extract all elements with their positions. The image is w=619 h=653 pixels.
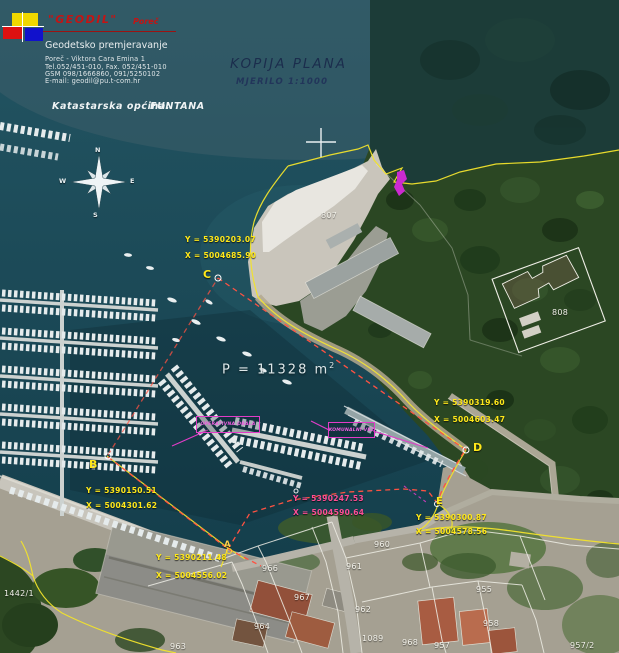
point-d-x: X = 5004603.47 — [434, 415, 505, 424]
aerial-photo-scenery — [0, 0, 619, 653]
parcel-label-1089: 1089 — [362, 634, 384, 643]
point-a-x: X = 5004556.02 — [156, 571, 227, 580]
point-c-letter: C — [203, 268, 211, 281]
point-b-y: Y = 5390150.51 — [86, 486, 157, 495]
page-title: KOPIJA PLANA — [230, 56, 347, 72]
point-c-y: Y = 5390203.07 — [185, 235, 256, 244]
point-d-y: Y = 5390319.60 — [434, 398, 505, 407]
komunalni-vez-text: KOMUNALNI VEZ — [329, 428, 375, 433]
logo-underline — [43, 31, 176, 32]
company-name: "GEODIL" — [48, 13, 118, 26]
parcel-label-967: 967 — [294, 593, 310, 602]
point-b-letter: B — [89, 458, 97, 471]
parcel-label-958: 958 — [483, 619, 499, 628]
parcel-label-963: 963 — [170, 642, 186, 651]
point-mid-y: Y = 5390247.53 — [293, 494, 364, 503]
company-address: Poreč - Viktora Cara Emina 1 — [45, 55, 145, 63]
point-e-letter: E — [436, 496, 443, 507]
komunalni-vez-label: KOMUNALNI VEZ — [328, 422, 375, 438]
logo-square-blue — [25, 28, 43, 41]
parcel-label-1442-1: 1442/1 — [4, 589, 34, 598]
parcel-label-960: 960 — [374, 540, 390, 549]
logo-square-red — [3, 26, 22, 39]
parcel-label-961: 961 — [346, 562, 362, 571]
company-email: E-mail: geodil@pu.t-com.hr — [45, 77, 140, 85]
parcel-label-968: 968 — [402, 638, 418, 647]
point-e-x: X = 5004578.56 — [416, 527, 487, 536]
point-a-y: Y = 5390211.48 — [156, 553, 227, 562]
point-mid-x: X = 5004590.64 — [293, 508, 364, 517]
point-c-x: X = 5004685.90 — [185, 251, 256, 260]
compass-north-label: N — [95, 146, 100, 154]
compass-south-label: S — [93, 211, 98, 219]
parcel-label-964: 964 — [254, 622, 270, 631]
point-e-y: Y = 5390300.87 — [416, 513, 487, 522]
parcel-label-808: 808 — [552, 308, 568, 317]
logo-divider — [22, 12, 23, 42]
cadastral-municipality-value: FUNTANA — [150, 101, 205, 112]
operativna-obala-label: OPERATIVNA OBALA — [196, 416, 260, 433]
parcel-label-957: 957 — [434, 641, 450, 650]
parcel-label-957-2: 957/2 — [570, 641, 595, 650]
area-value: P = 11328 m — [222, 362, 329, 377]
parcel-area-label: P = 11328 m2 — [222, 361, 336, 377]
compass-east-label: E — [130, 177, 134, 185]
parcel-label-966: 966 — [262, 564, 278, 573]
point-a-letter: A — [224, 540, 231, 550]
point-b-x: X = 5004301.62 — [86, 501, 157, 510]
logo-divider — [2, 26, 44, 27]
parcel-label-955: 955 — [476, 585, 492, 594]
parcel-label-807: 807 — [321, 211, 337, 220]
company-activity: Geodetsko premjeravanje — [45, 40, 168, 51]
cadastral-map-copy: "GEODIL" Poreč Geodetsko premjeravanje P… — [0, 0, 619, 653]
point-d-letter: D — [473, 441, 482, 454]
company-city: Poreč — [133, 17, 158, 26]
map-scale: MJERILO 1:1000 — [236, 77, 328, 87]
area-exponent: 2 — [329, 361, 336, 370]
logo-square-yellow — [12, 13, 38, 26]
compass-west-label: W — [59, 177, 66, 185]
operativna-obala-text: OPERATIVNA OBALA — [200, 422, 255, 427]
parcel-label-962: 962 — [355, 605, 371, 614]
